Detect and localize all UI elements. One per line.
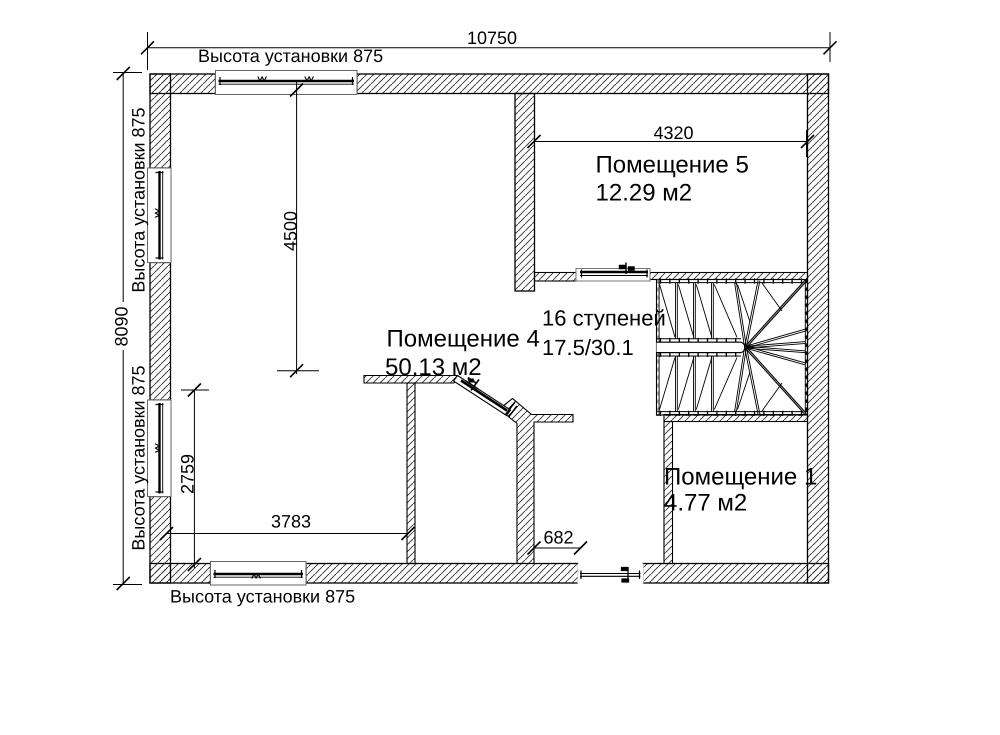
- svg-text:4500: 4500: [281, 211, 301, 251]
- svg-text:10750: 10750: [467, 28, 517, 48]
- svg-text:17.5/30.1: 17.5/30.1: [542, 335, 634, 360]
- svg-text:12.29 м2: 12.29 м2: [596, 180, 693, 207]
- svg-text:Высота установки 875: Высота установки 875: [198, 46, 383, 66]
- svg-text:Помещение 1: Помещение 1: [664, 464, 817, 491]
- svg-text:4.77 м2: 4.77 м2: [664, 490, 747, 517]
- svg-text:8090: 8090: [112, 306, 132, 346]
- svg-text:16 ступеней: 16 ступеней: [542, 306, 666, 331]
- svg-text:Высота установки 875: Высота установки 875: [170, 587, 355, 607]
- svg-text:50.13 м2: 50.13 м2: [385, 354, 482, 381]
- svg-text:682: 682: [543, 528, 573, 548]
- svg-text:Высота установки 875: Высота установки 875: [129, 365, 149, 550]
- svg-text:4320: 4320: [653, 123, 693, 143]
- svg-text:3783: 3783: [271, 512, 311, 532]
- svg-text:Высота установки 875: Высота установки 875: [129, 107, 149, 292]
- svg-text:2759: 2759: [178, 454, 198, 494]
- svg-text:Помещение 5: Помещение 5: [596, 152, 749, 179]
- svg-text:Помещение 4: Помещение 4: [387, 326, 540, 353]
